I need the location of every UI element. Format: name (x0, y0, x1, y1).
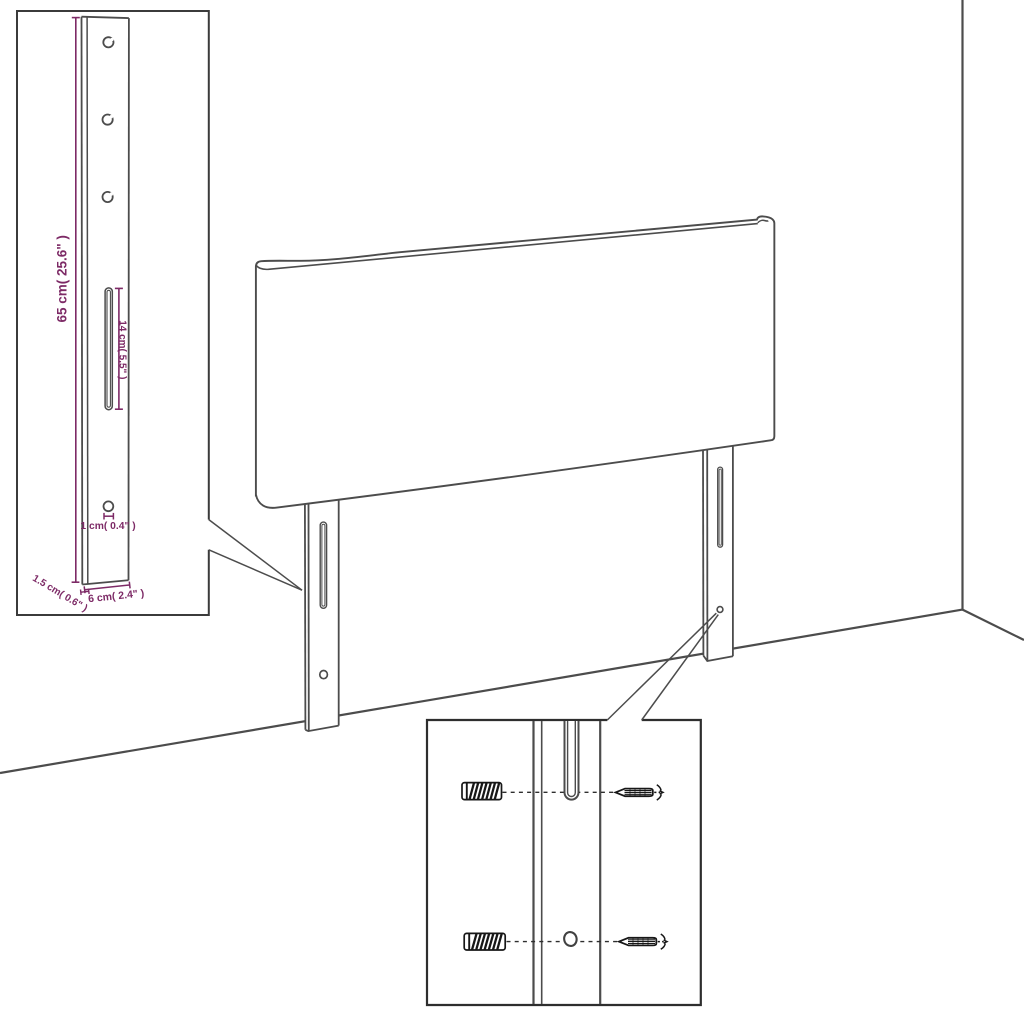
svg-text:14 cm( 5.5" ): 14 cm( 5.5" ) (116, 320, 127, 379)
svg-text:1 cm( 0.4" ): 1 cm( 0.4" ) (80, 521, 135, 532)
svg-text:65 cm( 25.6" ): 65 cm( 25.6" ) (55, 235, 70, 322)
